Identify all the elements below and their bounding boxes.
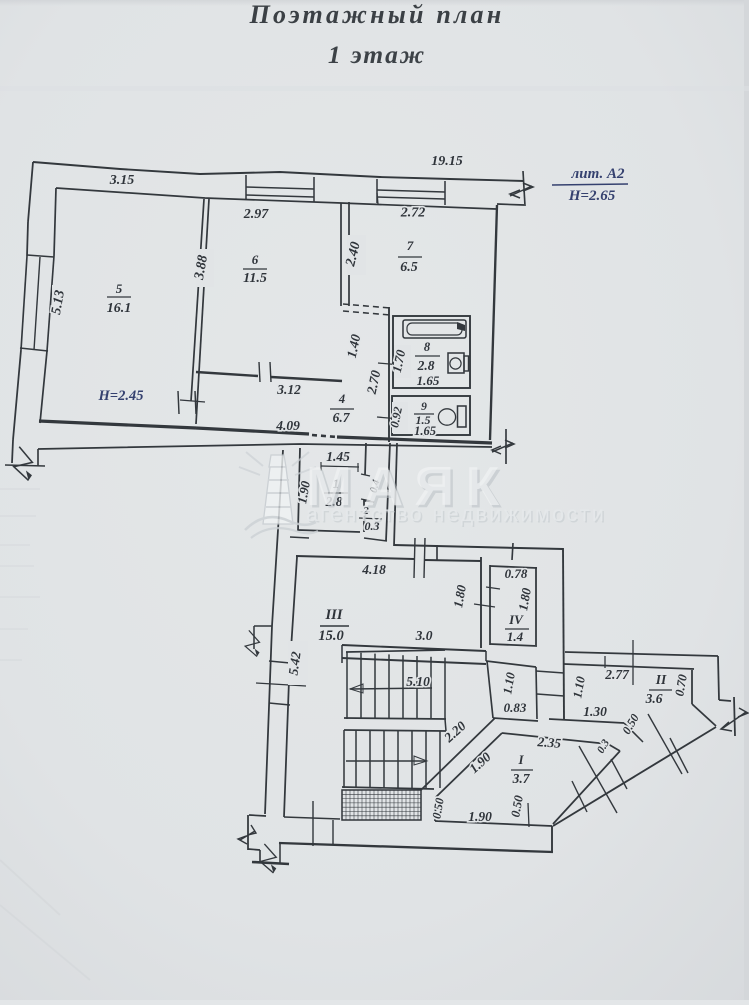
svg-text:агентство недвижимости: агентство недвижимости [306,502,606,526]
svg-text:2.8: 2.8 [417,358,435,373]
svg-text:4.09: 4.09 [275,418,300,433]
svg-text:19.15: 19.15 [431,154,463,169]
svg-text:6.5: 6.5 [400,260,418,275]
svg-text:6: 6 [252,252,259,267]
svg-text:2.72: 2.72 [400,206,426,221]
svg-text:1.4: 1.4 [507,629,524,644]
svg-text:1.30: 1.30 [583,704,607,719]
svg-text:4.18: 4.18 [361,562,386,577]
svg-text:3.12: 3.12 [276,382,301,397]
svg-text:0.83: 0.83 [504,700,527,715]
svg-text:0.78: 0.78 [505,566,528,581]
svg-text:IV: IV [508,612,524,627]
svg-text:5.10: 5.10 [406,674,430,689]
svg-text:4: 4 [338,392,345,406]
svg-text:1.65: 1.65 [414,424,436,438]
svg-text:3.7: 3.7 [512,771,531,786]
svg-text:11.5: 11.5 [243,271,267,286]
svg-text:3.15: 3.15 [109,173,135,188]
svg-text:9: 9 [421,401,427,413]
svg-text:6.7: 6.7 [333,410,351,425]
svg-text:3.6: 3.6 [645,691,663,706]
svg-text:2.97: 2.97 [243,207,270,222]
svg-text:7: 7 [407,238,414,253]
svg-text:лит. А2: лит. А2 [571,166,625,182]
svg-text:15.0: 15.0 [318,628,343,644]
svg-text:Н=2.65: Н=2.65 [568,188,616,204]
svg-text:5: 5 [116,281,123,296]
svg-text:Н=2.45: Н=2.45 [98,388,144,404]
svg-text:II: II [655,672,667,687]
svg-text:1 этаж: 1 этаж [328,40,426,69]
svg-text:III: III [325,607,344,623]
svg-text:8: 8 [424,340,431,354]
svg-text:Поэтажный план: Поэтажный план [249,0,505,29]
svg-text:1.90: 1.90 [468,809,492,824]
svg-text:16.1: 16.1 [107,301,132,316]
svg-text:3.0: 3.0 [415,628,433,643]
svg-text:2.77: 2.77 [604,667,630,682]
svg-text:1.65: 1.65 [417,373,440,388]
svg-text:2.35: 2.35 [536,734,562,751]
svg-text:I: I [517,752,524,767]
